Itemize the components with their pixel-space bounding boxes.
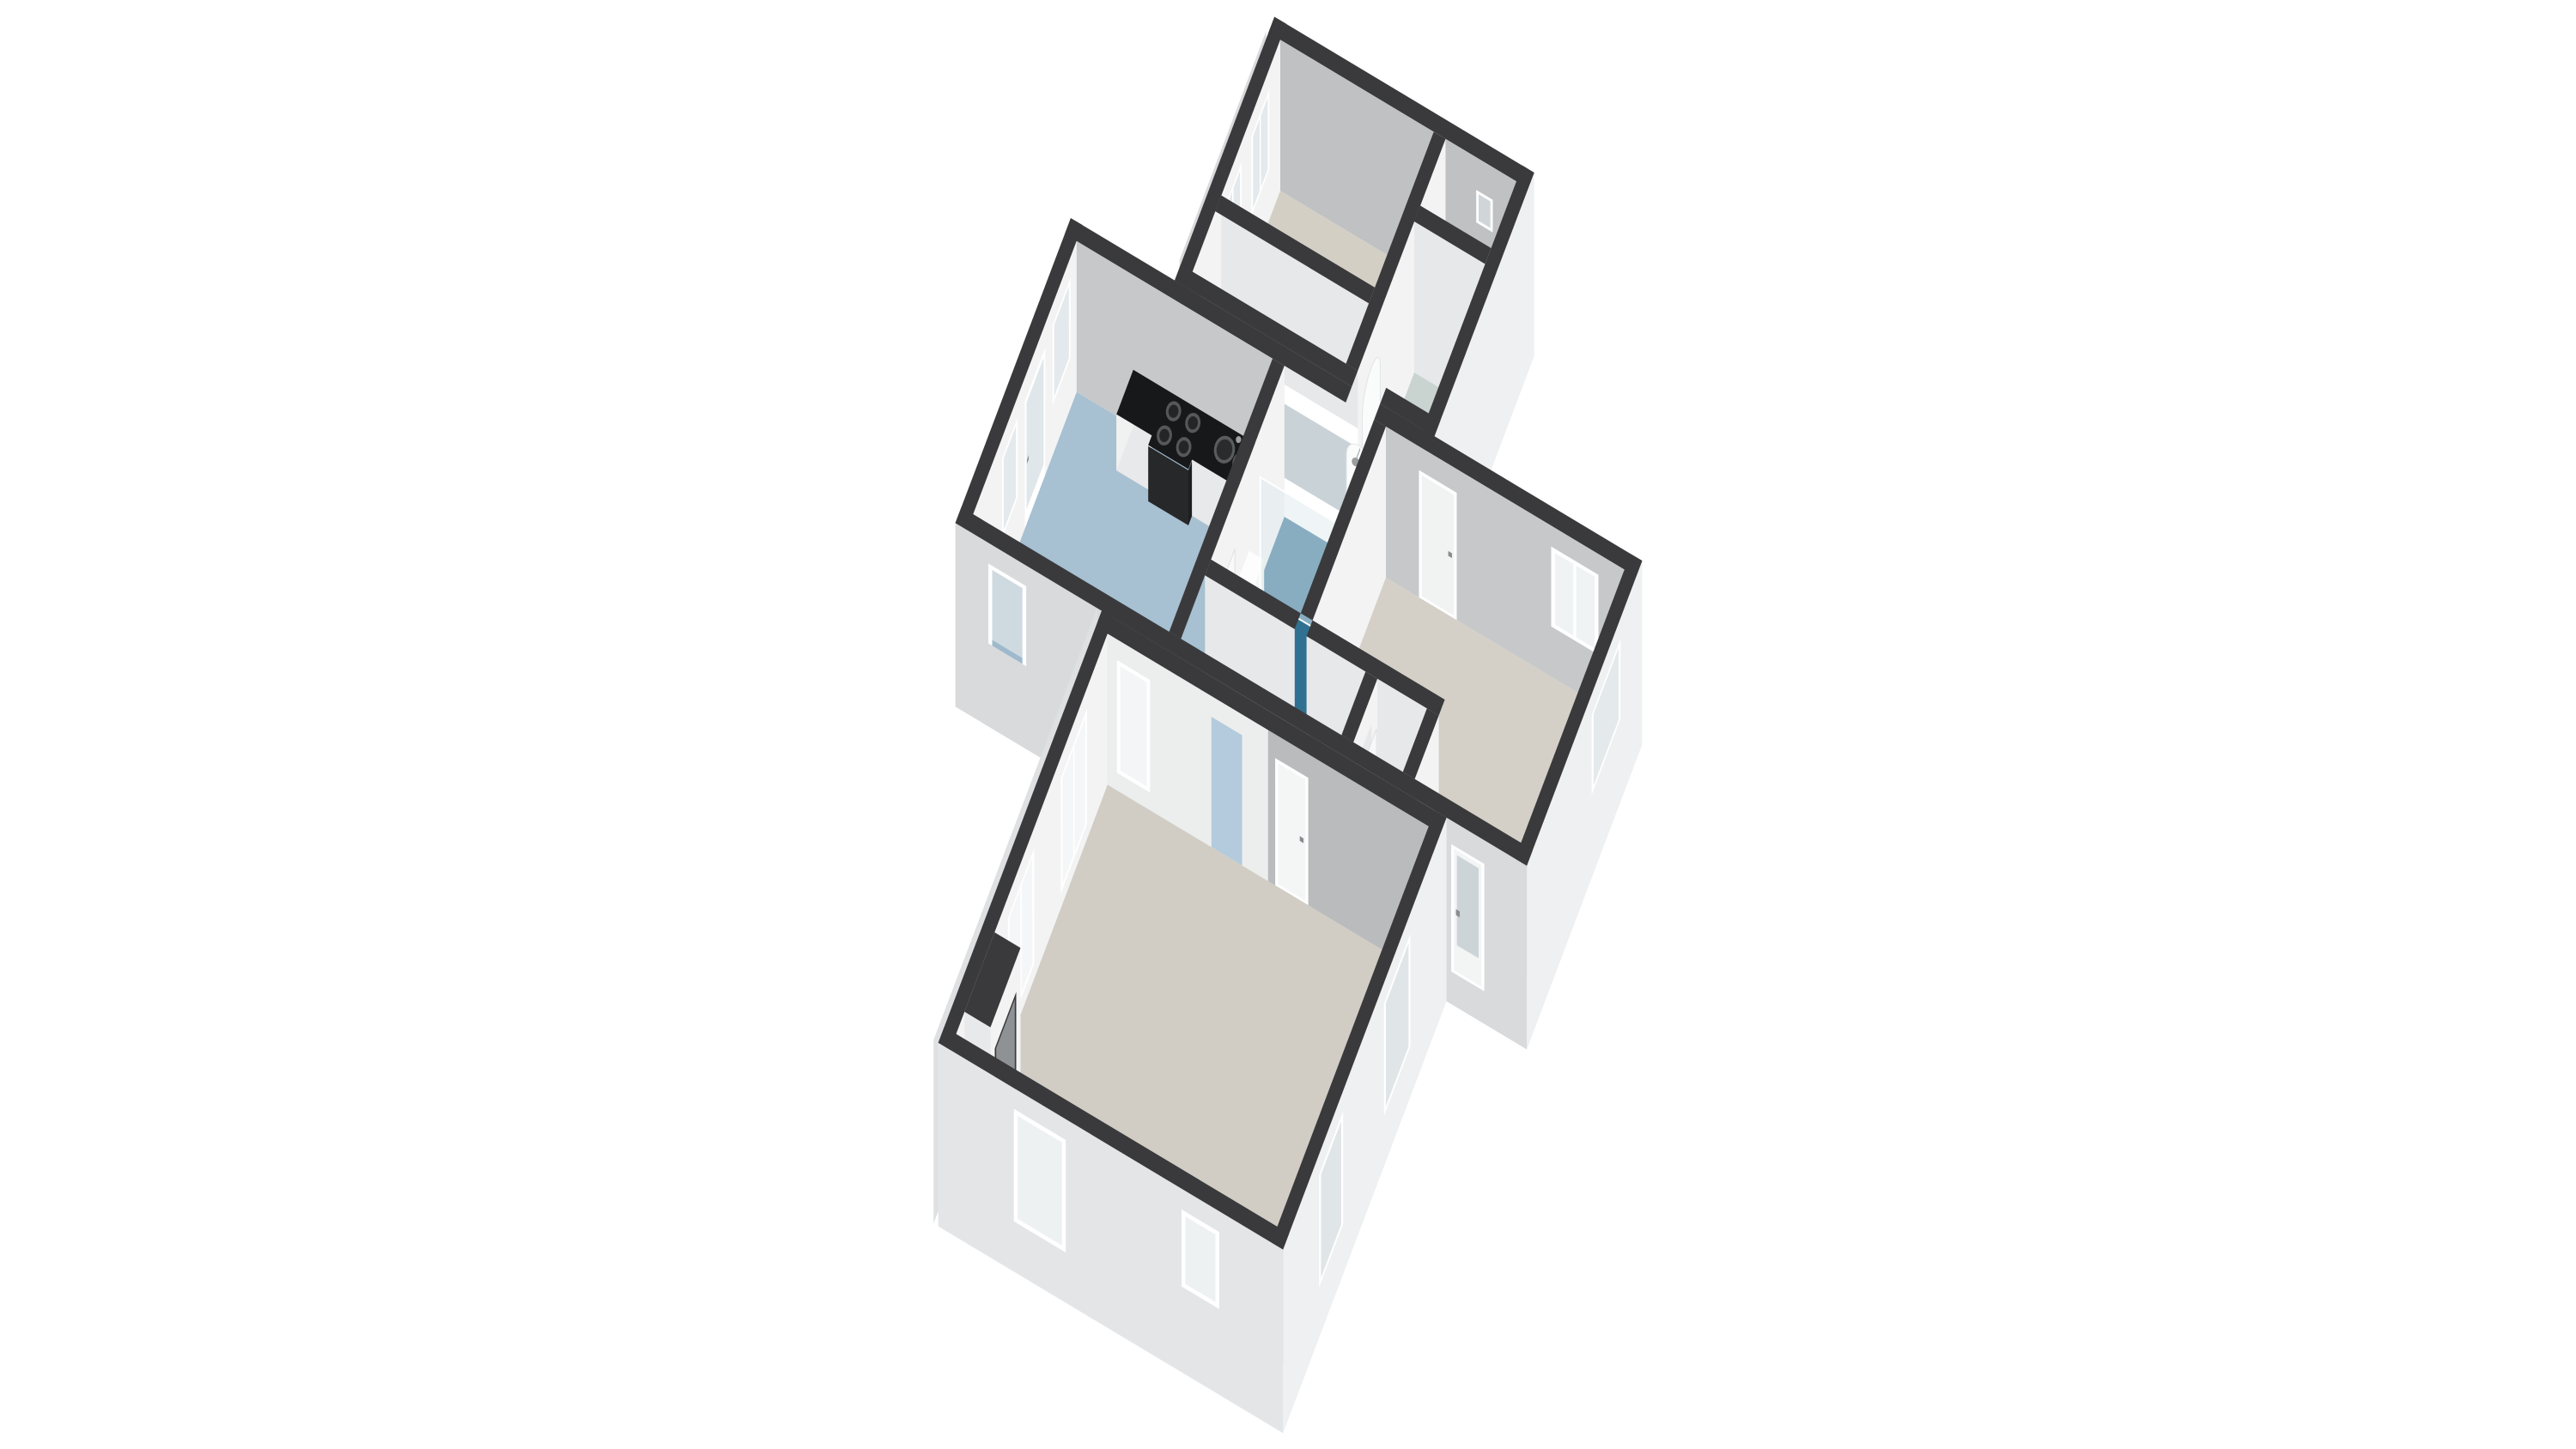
top-bedroom-window1-mullion xyxy=(1260,116,1261,191)
mid-bedroom-door-panel xyxy=(1422,476,1454,615)
living-kitchen-pass-panel xyxy=(1212,717,1242,865)
mid-bedroom-ne-window-mullion xyxy=(1573,564,1576,638)
floorplan-3d-render xyxy=(0,0,2576,1449)
living-hall-door-panel xyxy=(1278,763,1305,900)
back-door-glass xyxy=(1457,855,1479,958)
floorplan-viewport xyxy=(0,0,2576,1449)
stove-side xyxy=(1188,461,1192,525)
living-rear-window-glass xyxy=(1121,666,1147,786)
living-west-window1-mullion xyxy=(1073,746,1075,857)
